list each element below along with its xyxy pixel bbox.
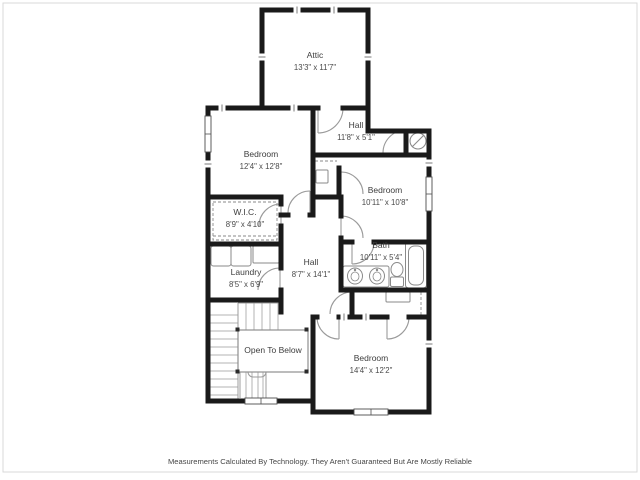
room-label-laundry: Laundry xyxy=(231,267,262,277)
linen-closet-door-arc xyxy=(330,292,352,314)
rail-post xyxy=(236,328,240,332)
bedroom-3-door-left-arc xyxy=(317,317,339,339)
room-label-open-to-below: Open To Below xyxy=(244,345,302,355)
room-labels: Attic13'3" x 11'7"Bedroom12'4" x 12'8"Ha… xyxy=(226,50,409,375)
room-label-hall-middle: Hall xyxy=(304,257,319,267)
room-label-bath: Bath xyxy=(372,240,390,250)
bedroom-2-door-arc xyxy=(341,172,363,194)
attic-door-arc xyxy=(318,108,343,133)
bedroom-1-door-arc xyxy=(288,191,310,213)
utility-box xyxy=(316,170,328,183)
disclaimer-text: Measurements Calculated By Technology. T… xyxy=(168,457,472,466)
room-dims-laundry: 8'5" x 6'9" xyxy=(229,280,263,289)
room-label-bedroom-1: Bedroom xyxy=(244,149,279,159)
bedroom-2-closet-door-arc xyxy=(341,216,363,238)
floor-plan: Attic13'3" x 11'7"Bedroom12'4" x 12'8"Ha… xyxy=(0,0,640,480)
toilet-icon xyxy=(391,277,404,287)
room-dims-bedroom-3: 14'4" x 12'2" xyxy=(350,366,393,375)
faucet-icon xyxy=(354,269,356,271)
room-dims-bedroom-2: 10'11" x 10'8" xyxy=(362,198,409,207)
bathtub-icon xyxy=(409,246,424,285)
dryer-icon xyxy=(231,246,251,266)
laundry-cabinet xyxy=(253,246,279,263)
page-border xyxy=(3,3,637,472)
linen-shelf xyxy=(386,292,410,302)
floor-plan-page: Attic13'3" x 11'7"Bedroom12'4" x 12'8"Ha… xyxy=(0,0,640,480)
washer-icon xyxy=(211,246,231,266)
rail-post xyxy=(305,328,309,332)
room-label-wic: W.I.C. xyxy=(233,207,256,217)
bedroom-3-door-right-arc xyxy=(387,317,409,339)
room-dims-attic: 13'3" x 11'7" xyxy=(294,63,336,72)
faucet-icon xyxy=(376,269,378,271)
room-dims-bedroom-1: 12'4" x 12'8" xyxy=(240,162,283,171)
rail-post xyxy=(305,370,309,374)
room-dims-bath: 10'11" x 5'4" xyxy=(360,253,402,262)
toilet-icon xyxy=(391,263,403,277)
room-dims-wic: 8'9" x 4'10" xyxy=(226,220,265,229)
room-label-attic: Attic xyxy=(307,50,324,60)
room-label-hall-upper: Hall xyxy=(349,120,364,130)
rail-post xyxy=(236,370,240,374)
room-label-bedroom-2: Bedroom xyxy=(368,185,403,195)
room-dims-hall-middle: 8'7" x 14'1" xyxy=(292,270,331,279)
room-label-bedroom-3: Bedroom xyxy=(354,353,389,363)
room-dims-hall-upper: 11'8" x 5'1" xyxy=(337,133,375,142)
